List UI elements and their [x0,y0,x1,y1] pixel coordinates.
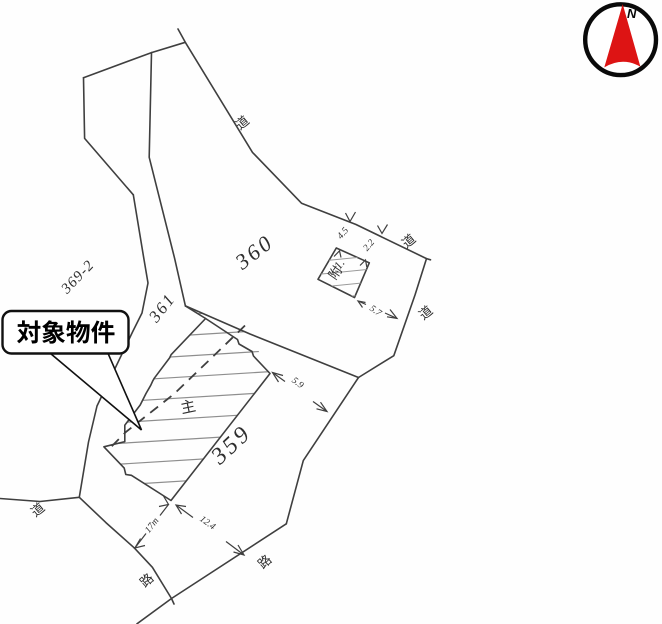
svg-text:4.5: 4.5 [336,226,351,242]
svg-text:361: 361 [144,289,179,326]
svg-text:N: N [627,6,637,21]
svg-text:12.4: 12.4 [198,514,218,532]
svg-text:2.2: 2.2 [362,238,377,254]
svg-text:369-2: 369-2 [58,257,98,298]
svg-text:360: 360 [229,229,278,275]
svg-text:359: 359 [206,420,257,470]
svg-text:5.7: 5.7 [367,304,383,320]
svg-text:17m: 17m [143,516,161,535]
svg-text:5.9: 5.9 [289,376,305,391]
